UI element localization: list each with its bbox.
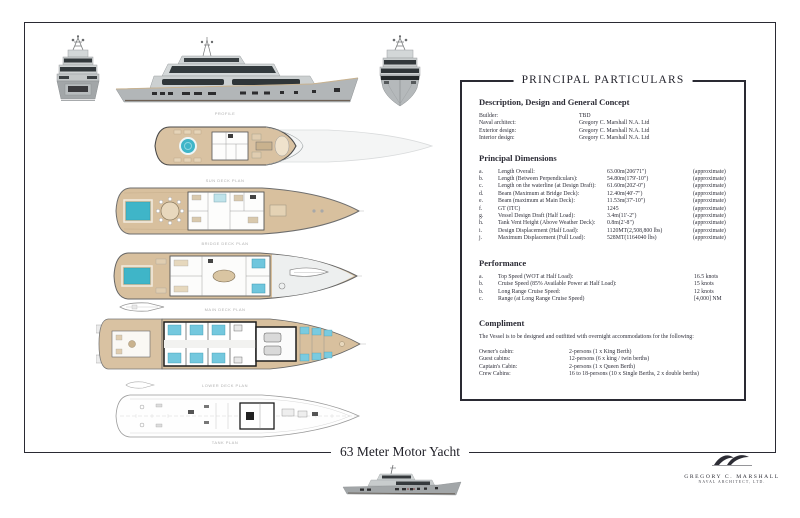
main-deck-plan-icon: [110, 248, 362, 304]
row-index: f.: [479, 206, 498, 213]
mini-yacht-icon: [340, 461, 465, 505]
performance-row: c. Range (at Long Range Cruise Speed) [4…: [479, 296, 736, 303]
row-value: TBD: [579, 113, 736, 120]
bridge-deck-plan-icon: [112, 184, 364, 238]
row-index: b.: [479, 289, 498, 296]
row-value: 16 to 18-persons (10 x Single Berths, 2 …: [569, 371, 736, 378]
row-value: 2-persons (1 x Queen Berth): [569, 364, 736, 371]
row-label: Cruise Speed (85% Available Power at Hal…: [498, 281, 694, 288]
row-label: Naval architect:: [479, 120, 579, 127]
row-value: 15 knots: [694, 281, 736, 288]
row-value: 528MT(1164040 lbs): [607, 235, 693, 242]
row-label: Length Overall:: [498, 169, 607, 176]
performance-row: a. Top Speed (WOT at Half Load): 16.5 kn…: [479, 274, 736, 281]
dimension-row: h. Tank Vent Height (Above Weather Deck)…: [479, 220, 736, 227]
row-index: i.: [479, 228, 498, 235]
sun-deck-plan-icon: [148, 122, 436, 170]
principal-particulars-title: PRINCIPAL PARTICULARS: [514, 74, 693, 86]
row-value: Gregory C. Marshall N.A. Ltd: [579, 128, 736, 135]
row-index: h.: [479, 220, 498, 227]
row-value: 2-persons (1 x King Berth): [569, 349, 736, 356]
performance-heading: Performance: [479, 258, 736, 268]
row-note: (approximate): [693, 169, 736, 176]
row-label: Owner's cabin:: [479, 349, 569, 356]
row-note: (approximate): [693, 183, 736, 190]
row-value: 61.60m(202'-0"): [607, 183, 693, 190]
footer-yacht-thumbnail: [340, 461, 465, 510]
row-index: b.: [479, 176, 498, 183]
compliment-row: Owner's cabin: 2-persons (1 x King Berth…: [479, 349, 736, 356]
row-label: Crew Cabins:: [479, 371, 569, 378]
profile-view-icon: [112, 36, 362, 110]
row-note: (approximate): [693, 198, 736, 205]
row-value: 12-persons (6 x king / twin berths): [569, 356, 736, 363]
tender-boat-small-icon: [125, 380, 155, 390]
lower-deck-plan: [96, 311, 366, 382]
compliment-heading: Compliment: [479, 318, 736, 328]
concept-row: Naval architect: Gregory C. Marshall N.A…: [479, 120, 736, 127]
row-label: Interior design:: [479, 135, 579, 142]
gcm-wave-icon: [710, 452, 754, 468]
row-value: 0.8m(2'-8"): [607, 220, 693, 227]
performance-rows: a. Top Speed (WOT at Half Load): 16.5 kn…: [479, 274, 736, 304]
dimensions-heading: Principal Dimensions: [479, 153, 736, 163]
row-index: a.: [479, 274, 498, 281]
concept-row: Interior design: Gregory C. Marshall N.A…: [479, 135, 736, 142]
row-value: 11.53m(37'-10"): [607, 198, 693, 205]
row-value: 16.5 knots: [694, 274, 736, 281]
sun-deck-caption: SUN DECK PLAN: [206, 178, 245, 183]
dimension-row: f. GT (ITC) 1245 (approximate): [479, 206, 736, 213]
lower-deck-plan-icon: [96, 311, 366, 377]
row-index: b.: [479, 281, 498, 288]
row-label: Top Speed (WOT at Half Load):: [498, 274, 694, 281]
principal-particulars-content: Description, Design and General Concept …: [462, 82, 744, 378]
principal-particulars-box: PRINCIPAL PARTICULARS Description, Desig…: [460, 80, 746, 401]
row-index: c.: [479, 183, 498, 190]
concept-row: Builder: TBD: [479, 113, 736, 120]
profile-drawing: [112, 36, 362, 115]
compliment-row: Crew Cabins: 16 to 18-persons (10 x Sing…: [479, 371, 736, 378]
sheet-title: 63 Meter Motor Yacht: [331, 444, 469, 460]
row-label: Beam (maximum at Main Deck):: [498, 198, 607, 205]
row-value: 63.00m(206'71"): [607, 169, 693, 176]
gcm-logo-subtitle: NAVAL ARCHITECT, LTD.: [672, 480, 792, 484]
compliment-intro: The Vessel is to be designed and outfitt…: [479, 334, 707, 341]
bridge-deck-caption: BRIDGE DECK PLAN: [201, 241, 248, 246]
row-note: (approximate): [693, 235, 736, 242]
lower-deck-caption: LOWER DECK PLAN: [202, 383, 248, 388]
compliment-rows: Owner's cabin: 2-persons (1 x King Berth…: [479, 349, 736, 379]
row-label: Builder:: [479, 113, 579, 120]
row-value: Gregory C. Marshall N.A. Ltd: [579, 120, 736, 127]
row-index: j.: [479, 235, 498, 242]
row-label: Tank Vent Height (Above Weather Deck):: [498, 220, 607, 227]
performance-row: b. Long Range Cruise Speed: 12 knots: [479, 289, 736, 296]
row-value: Gregory C. Marshall N.A. Ltd: [579, 135, 736, 142]
gcm-logo: GREGORY C. MARSHALL NAVAL ARCHITECT, LTD…: [672, 452, 792, 484]
concept-rows: Builder: TBD Naval architect: Gregory C.…: [479, 113, 736, 143]
tank-deck-plan-icon: [112, 391, 364, 441]
row-index: g.: [479, 213, 498, 220]
row-label: Long Range Cruise Speed:: [498, 289, 694, 296]
row-note: (approximate): [693, 206, 736, 213]
row-label: Range (at Long Range Cruise Speed): [498, 296, 694, 303]
row-label: GT (ITC): [498, 206, 607, 213]
dimension-row: c. Length on the waterline (at Design Dr…: [479, 183, 736, 190]
row-index: d.: [479, 191, 498, 198]
concept-heading: Description, Design and General Concept: [479, 97, 736, 107]
sun-deck-plan: [148, 122, 436, 175]
row-note: (approximate): [693, 220, 736, 227]
profile-caption: PROFILE: [215, 111, 236, 116]
compliment-row: Captain's Cabin: 2-persons (1 x Queen Be…: [479, 364, 736, 371]
row-label: Length on the waterline (at Design Draft…: [498, 183, 607, 190]
row-value: 1245: [607, 206, 693, 213]
row-label: Guest cabins:: [479, 356, 569, 363]
concept-row: Exterior design: Gregory C. Marshall N.A…: [479, 128, 736, 135]
dimension-row: j. Maximum Displacement (Full Load): 528…: [479, 235, 736, 242]
row-value: [4,000] NM: [694, 296, 736, 303]
row-label: Captain's Cabin:: [479, 364, 569, 371]
tank-deck-caption: TANK PLAN: [212, 440, 238, 445]
dimension-row: a. Length Overall: 63.00m(206'71") (appr…: [479, 169, 736, 176]
stern-view-icon: [50, 34, 106, 112]
compliment-row: Guest cabins: 12-persons (6 x king / twi…: [479, 356, 736, 363]
row-index: e.: [479, 198, 498, 205]
dimension-rows: a. Length Overall: 63.00m(206'71") (appr…: [479, 169, 736, 243]
tank-deck-plan: [112, 391, 364, 446]
yacht-spec-sheet: PROFILE SUN DECK PLAN: [0, 0, 800, 518]
bow-view-drawing: [372, 34, 428, 117]
row-index: a.: [479, 169, 498, 176]
row-label: Maximum Displacement (Full Load):: [498, 235, 607, 242]
stern-view-drawing: [50, 34, 106, 117]
bridge-deck-plan: [112, 184, 364, 243]
row-value: 12 knots: [694, 289, 736, 296]
row-index: c.: [479, 296, 498, 303]
row-label: Exterior design:: [479, 128, 579, 135]
performance-row: b. Cruise Speed (85% Available Power at …: [479, 281, 736, 288]
dimension-row: e. Beam (maximum at Main Deck): 11.53m(3…: [479, 198, 736, 205]
bow-view-icon: [372, 34, 428, 112]
